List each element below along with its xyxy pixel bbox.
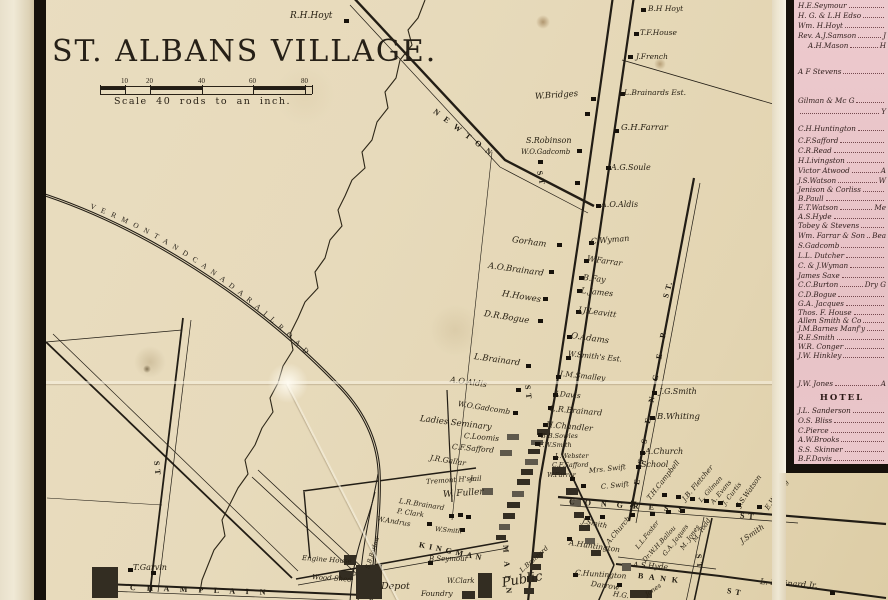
directory-row: James Saxe: [798, 272, 886, 279]
house-marker: [466, 515, 471, 519]
dotted-leader: [867, 237, 870, 238]
building: [507, 502, 520, 508]
road-line: [352, 0, 594, 206]
house-marker: [458, 513, 463, 517]
house-marker: [538, 319, 543, 323]
dotted-leader: [840, 286, 862, 287]
building: [462, 591, 475, 599]
scale-number-60: 60: [249, 77, 256, 85]
directory-name: G.A. Jacques: [798, 300, 844, 307]
house-marker: [549, 270, 554, 274]
dotted-leader: [845, 348, 884, 349]
directory-row: R.E.Smith: [798, 334, 886, 341]
dotted-leader: [850, 47, 877, 48]
dotted-leader: [834, 152, 884, 153]
directory-row: Gilman & Mc G: [798, 97, 886, 104]
map-label-b-b-sowles: B.B.Sowles: [541, 433, 578, 440]
map-label-s-t: S T: [152, 461, 161, 476]
directory-name: Wm. H.Hoyt: [798, 22, 843, 29]
house-marker: [662, 493, 667, 497]
directory-row: J.W. JonesA: [798, 380, 886, 387]
dotted-leader: [852, 172, 879, 173]
directory-row: A.W.Brooks: [798, 436, 886, 443]
map-label-foundry: Foundry: [421, 590, 453, 598]
dotted-leader: [835, 385, 879, 386]
directory-name: C. & J.Wyman: [798, 262, 848, 269]
building: [517, 479, 530, 485]
directory-name: S.S. Skinner: [798, 446, 843, 453]
building: [500, 450, 512, 456]
house-marker: [634, 32, 639, 36]
directory-row: S.Gadcomb: [798, 242, 886, 249]
dotted-leader: [831, 432, 884, 433]
map-title: ST. ALBANS VILLAGE.: [52, 34, 437, 69]
map-label-r-h-hoyt: R.H.Hoyt: [290, 12, 332, 21]
directory-name: J.S.Watson: [798, 177, 836, 184]
directory-row: Tobey & Stevens: [798, 222, 886, 229]
dotted-leader: [843, 73, 884, 74]
directory-row: S.S. Skinner: [798, 446, 886, 453]
directory-fragment: A: [881, 167, 886, 174]
map-border-left: [34, 0, 46, 600]
directory-row: H.Livingston: [798, 157, 886, 164]
directory-name: Rev. A.J.Samson: [798, 32, 856, 39]
directory-row: O.S. Bliss: [798, 417, 886, 424]
directory-name: L.L. Dutcher: [798, 252, 844, 259]
building: [499, 524, 510, 530]
building: [525, 459, 538, 465]
building: [521, 469, 533, 475]
scale-segment: [253, 87, 305, 90]
dotted-leader: [847, 162, 884, 163]
directory-name: O.S. Bliss: [798, 417, 832, 424]
directory-name: Victor Atwood: [798, 167, 850, 174]
house-marker: [526, 364, 531, 368]
dotted-leader: [845, 27, 884, 28]
railroad-name: V E R M O N T A N D C A N A D A R A I L …: [89, 201, 313, 357]
directory-row: Rev. A.J.SamsonJ: [798, 32, 886, 39]
road-line: [46, 330, 182, 342]
directory-name: C.C.Burton: [798, 281, 838, 288]
directory-row: B.F.Davis: [798, 455, 886, 462]
directory-name: H. G. & L.H Edso: [798, 12, 861, 19]
directory-name: C.H.Huntington: [798, 125, 856, 132]
directory-fragment: J: [883, 32, 886, 39]
dotted-leader: [849, 7, 884, 8]
dotted-leader: [838, 296, 884, 297]
scale-number-10: 10: [121, 77, 128, 85]
directory-fragment: H: [880, 42, 886, 49]
directory-name: W.R. Conger: [798, 343, 843, 350]
directory-panel: H.E.SeymourH. G. & L.H EdsoWm. H.HoytRev…: [794, 0, 888, 464]
map-label-s-t: S T: [740, 512, 755, 521]
map-label-a-g-soule: A.G.Soule: [611, 164, 651, 172]
house-marker: [614, 129, 619, 133]
house-marker: [516, 388, 521, 392]
directory-name: J.W. Hinkley: [798, 352, 841, 359]
directory-name: B.F.Davis: [798, 455, 832, 462]
house-marker: [543, 297, 548, 301]
dotted-leader: [853, 412, 884, 413]
house-marker: [538, 160, 543, 164]
directory-name: C.D.Bogue: [798, 291, 836, 298]
scale-segment: [100, 87, 125, 90]
scale-tick: [202, 85, 203, 94]
map-label-c-f-safford: C.F.Safford: [552, 462, 589, 469]
map-label-s-t: S T: [694, 554, 703, 569]
house-marker: [344, 19, 349, 23]
directory-fragment: A: [881, 380, 886, 387]
house-marker: [600, 515, 605, 519]
directory-row: J.L. Sanderson: [798, 407, 886, 414]
directory-name: Tobey & Stevens: [798, 222, 859, 229]
house-marker: [513, 411, 518, 415]
directory-row: C.F.Safford: [798, 137, 886, 144]
directory-name: A F Stevens: [798, 68, 841, 75]
building: [524, 588, 534, 594]
map-label-s-robinson: S.Robinson: [526, 137, 571, 145]
house-marker: [641, 8, 646, 12]
building: [478, 573, 492, 598]
building: [92, 567, 118, 598]
map-label-t-garvin: T.Garvin: [133, 564, 167, 572]
directory-row: E.T.WatsonMe: [798, 204, 886, 211]
scale-caption: Scale 40 rods to an inch.: [114, 96, 291, 107]
map-canvas: V E R M O N T A N D C A N A D A R A I L …: [0, 0, 888, 600]
building: [622, 563, 631, 571]
dotted-leader: [845, 451, 884, 452]
building: [496, 535, 506, 540]
directory-row: G.A. Jacques: [798, 300, 886, 307]
map-label-t-f-house: T.F.House: [640, 29, 677, 37]
directory-name: J.L. Sanderson: [798, 407, 851, 414]
house-marker: [577, 149, 582, 153]
dotted-leader: [858, 130, 884, 131]
panel-border-left: [786, 0, 794, 473]
map-label-l-brainards-est: L.Brainards Est.: [624, 89, 686, 97]
scale-tick: [125, 85, 126, 94]
directory-row: A.H.MasonH: [798, 42, 886, 49]
dotted-leader: [834, 460, 884, 461]
directory-row: C.R.Read: [798, 147, 886, 154]
map-label-b-h-hoyt: B.H Hoyt: [648, 5, 683, 13]
directory-name: C.F.Safford: [798, 137, 838, 144]
directory-row: B.Paull: [798, 195, 886, 202]
directory-row: A.S.Hyde: [798, 213, 886, 220]
dotted-leader: [800, 113, 879, 114]
map-label-jail: Jail: [470, 476, 481, 483]
directory-row: C.D.Bogue: [798, 291, 886, 298]
directory-row: Wm. H.Hoyt: [798, 22, 886, 29]
road-line: [562, 0, 634, 455]
map-label-g-h-farrar: G.H.Farrar: [621, 124, 668, 133]
map-label-b-whiting: B.Whiting: [657, 413, 700, 422]
directory-name: Gilman & Mc G: [798, 97, 854, 104]
directory-fragment: W: [879, 177, 886, 184]
scale-number-80: 80: [301, 77, 308, 85]
map-label-a-o-aldis: A.O.Aldis: [601, 201, 638, 209]
page-margin-left: [0, 0, 34, 600]
map-label-j-g-smith: J.G.Smith: [659, 388, 697, 396]
dotted-leader: [841, 441, 884, 442]
directory-name: Jenison & Corliss: [798, 186, 861, 193]
house-marker: [830, 591, 835, 595]
dotted-leader: [840, 209, 872, 210]
dotted-leader: [856, 102, 884, 103]
house-marker: [585, 112, 590, 116]
directory-fragment: Y: [881, 108, 886, 115]
directory-name: James Saxe: [798, 272, 840, 279]
house-marker: [650, 512, 655, 516]
fold-crease-horizontal: [0, 381, 775, 384]
directory-row: J.M.Barnes Manf'y: [798, 325, 886, 332]
dotted-leader: [842, 277, 884, 278]
dotted-leader: [846, 257, 884, 258]
scale-number-40: 40: [198, 77, 205, 85]
directory-fragment: Me: [874, 204, 886, 211]
map-label-w-o-gadcomb: W.O.Gadcomb: [521, 149, 570, 156]
house-marker: [575, 181, 580, 185]
directory-row: W.R. Conger: [798, 343, 886, 350]
dotted-leader: [843, 357, 884, 358]
directory-row: C.C.BurtonDry G: [798, 281, 886, 288]
scale-tick: [150, 85, 151, 94]
panel-border-bottom: [786, 464, 888, 473]
panel-glare: [779, 0, 786, 473]
dotted-leader: [863, 322, 884, 323]
building: [528, 449, 540, 454]
directory-name: E.T.Watson: [798, 204, 838, 211]
map-label-l-webster: L.Webster: [555, 453, 588, 460]
directory-row: Victor AtwoodA: [798, 167, 886, 174]
directory-fragment: Bea: [872, 232, 886, 239]
house-marker: [581, 484, 586, 488]
dotted-leader: [840, 142, 884, 143]
dotted-leader: [834, 422, 884, 423]
house-marker: [591, 97, 596, 101]
road-line: [47, 498, 162, 505]
house-marker: [757, 505, 762, 509]
building: [356, 565, 382, 599]
building: [566, 488, 578, 495]
map-label-f-w-smith: F.W.Smith: [539, 442, 572, 449]
directory-name: A.S.Hyde: [798, 213, 832, 220]
dotted-leader: [837, 339, 884, 340]
directory-row: J.S.WatsonW: [798, 177, 886, 184]
map-label-s-t: S T: [523, 385, 532, 400]
directory-row: L.L. Dutcher: [798, 252, 886, 259]
directory-row: Jenison & Corliss: [798, 186, 886, 193]
dotted-leader: [858, 37, 881, 38]
directory-name: C.Pierce: [798, 427, 829, 434]
directory-header: HOTEL: [798, 394, 886, 403]
building: [512, 491, 524, 497]
road-line: [53, 334, 298, 571]
house-marker: [449, 514, 454, 518]
building: [507, 434, 519, 440]
directory-row: C. & J.Wyman: [798, 262, 886, 269]
dotted-leader: [850, 267, 884, 268]
map-label-w-clark: W.Clark: [447, 578, 475, 585]
house-marker: [628, 55, 633, 59]
directory-name: A.W.Brooks: [798, 436, 839, 443]
dotted-leader: [846, 305, 884, 306]
directory-name: J.W. Jones: [798, 380, 833, 387]
dotted-leader: [826, 200, 884, 201]
map-label-j-french: J.French: [636, 53, 668, 61]
scale-tick: [312, 85, 313, 94]
scale-tick: [253, 85, 254, 94]
directory-name: S.Gadcomb: [798, 242, 839, 249]
directory-row: J.W. Hinkley: [798, 352, 886, 359]
directory-name: J.M.Barnes Manf'y: [798, 325, 865, 332]
directory-row: Wm. Farrar & SonBea: [798, 232, 886, 239]
road-line: [622, 60, 780, 106]
directory-fragment: Dry G: [865, 281, 886, 288]
house-marker: [630, 513, 635, 517]
directory-name: Wm. Farrar & Son: [798, 232, 865, 239]
road-line: [304, 492, 310, 558]
directory-row: C.H.Huntington: [798, 125, 886, 132]
fold-glare: [266, 361, 310, 405]
dotted-leader: [838, 182, 876, 183]
building: [503, 513, 515, 519]
directory-name: C.R.Read: [798, 147, 832, 154]
dotted-leader: [861, 227, 884, 228]
scale-number-20: 20: [146, 77, 153, 85]
map-label-depot: Depot: [381, 582, 410, 592]
railroad-track-center: [36, 192, 379, 600]
directory-row: Y: [798, 108, 886, 115]
dotted-leader: [841, 247, 884, 248]
map-label-a-church: A.Church: [645, 448, 683, 456]
road-line: [46, 342, 292, 578]
dotted-leader: [834, 218, 884, 219]
dotted-leader: [863, 191, 884, 192]
map-label-w-farrar: W.Farrar: [547, 472, 576, 479]
map-label-j-davis: J.Davis: [555, 390, 581, 400]
scale-bar: [100, 86, 312, 95]
directory-row: H.E.Seymour: [798, 2, 886, 9]
house-marker: [557, 243, 562, 247]
scale-tick: [100, 85, 101, 94]
directory-row: A F Stevens: [798, 68, 886, 75]
house-marker: [427, 522, 432, 526]
dotted-leader: [867, 330, 884, 331]
directory-name: R.E.Smith: [798, 334, 835, 341]
directory-name: A.H.Mason: [808, 42, 848, 49]
directory-row: C.Pierce: [798, 427, 886, 434]
directory-row: H. G. & L.H Edso: [798, 12, 886, 19]
directory-name: H.Livingston: [798, 157, 845, 164]
map-label-s-t: S T: [535, 170, 546, 186]
directory-name: B.Paull: [798, 195, 824, 202]
dotted-leader: [863, 17, 884, 18]
directory-name: H.E.Seymour: [798, 2, 847, 9]
road-line: [158, 320, 191, 592]
scale-tick: [305, 85, 306, 94]
railroad-track: [36, 192, 379, 600]
scale-segment: [150, 87, 202, 90]
